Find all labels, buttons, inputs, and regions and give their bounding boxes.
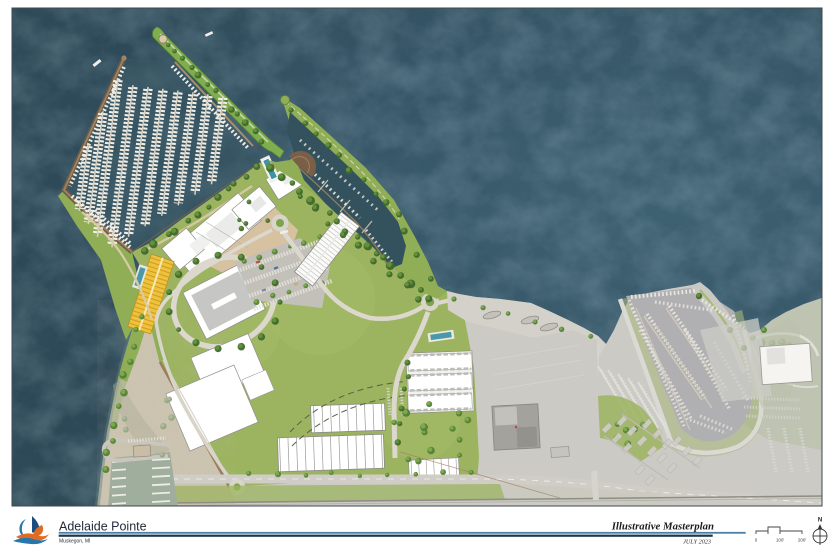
svg-text:0: 0 — [755, 538, 758, 543]
svg-text:N: N — [818, 518, 822, 524]
svg-text:100': 100' — [776, 538, 785, 543]
svg-text:JULY 2023: JULY 2023 — [683, 539, 711, 546]
svg-text:Illustrative Masterplan: Illustrative Masterplan — [611, 521, 714, 533]
svg-text:Muskegon, MI: Muskegon, MI — [59, 539, 90, 545]
svg-text:Adelaide Pointe: Adelaide Pointe — [59, 520, 147, 534]
svg-text:200': 200' — [798, 538, 807, 543]
